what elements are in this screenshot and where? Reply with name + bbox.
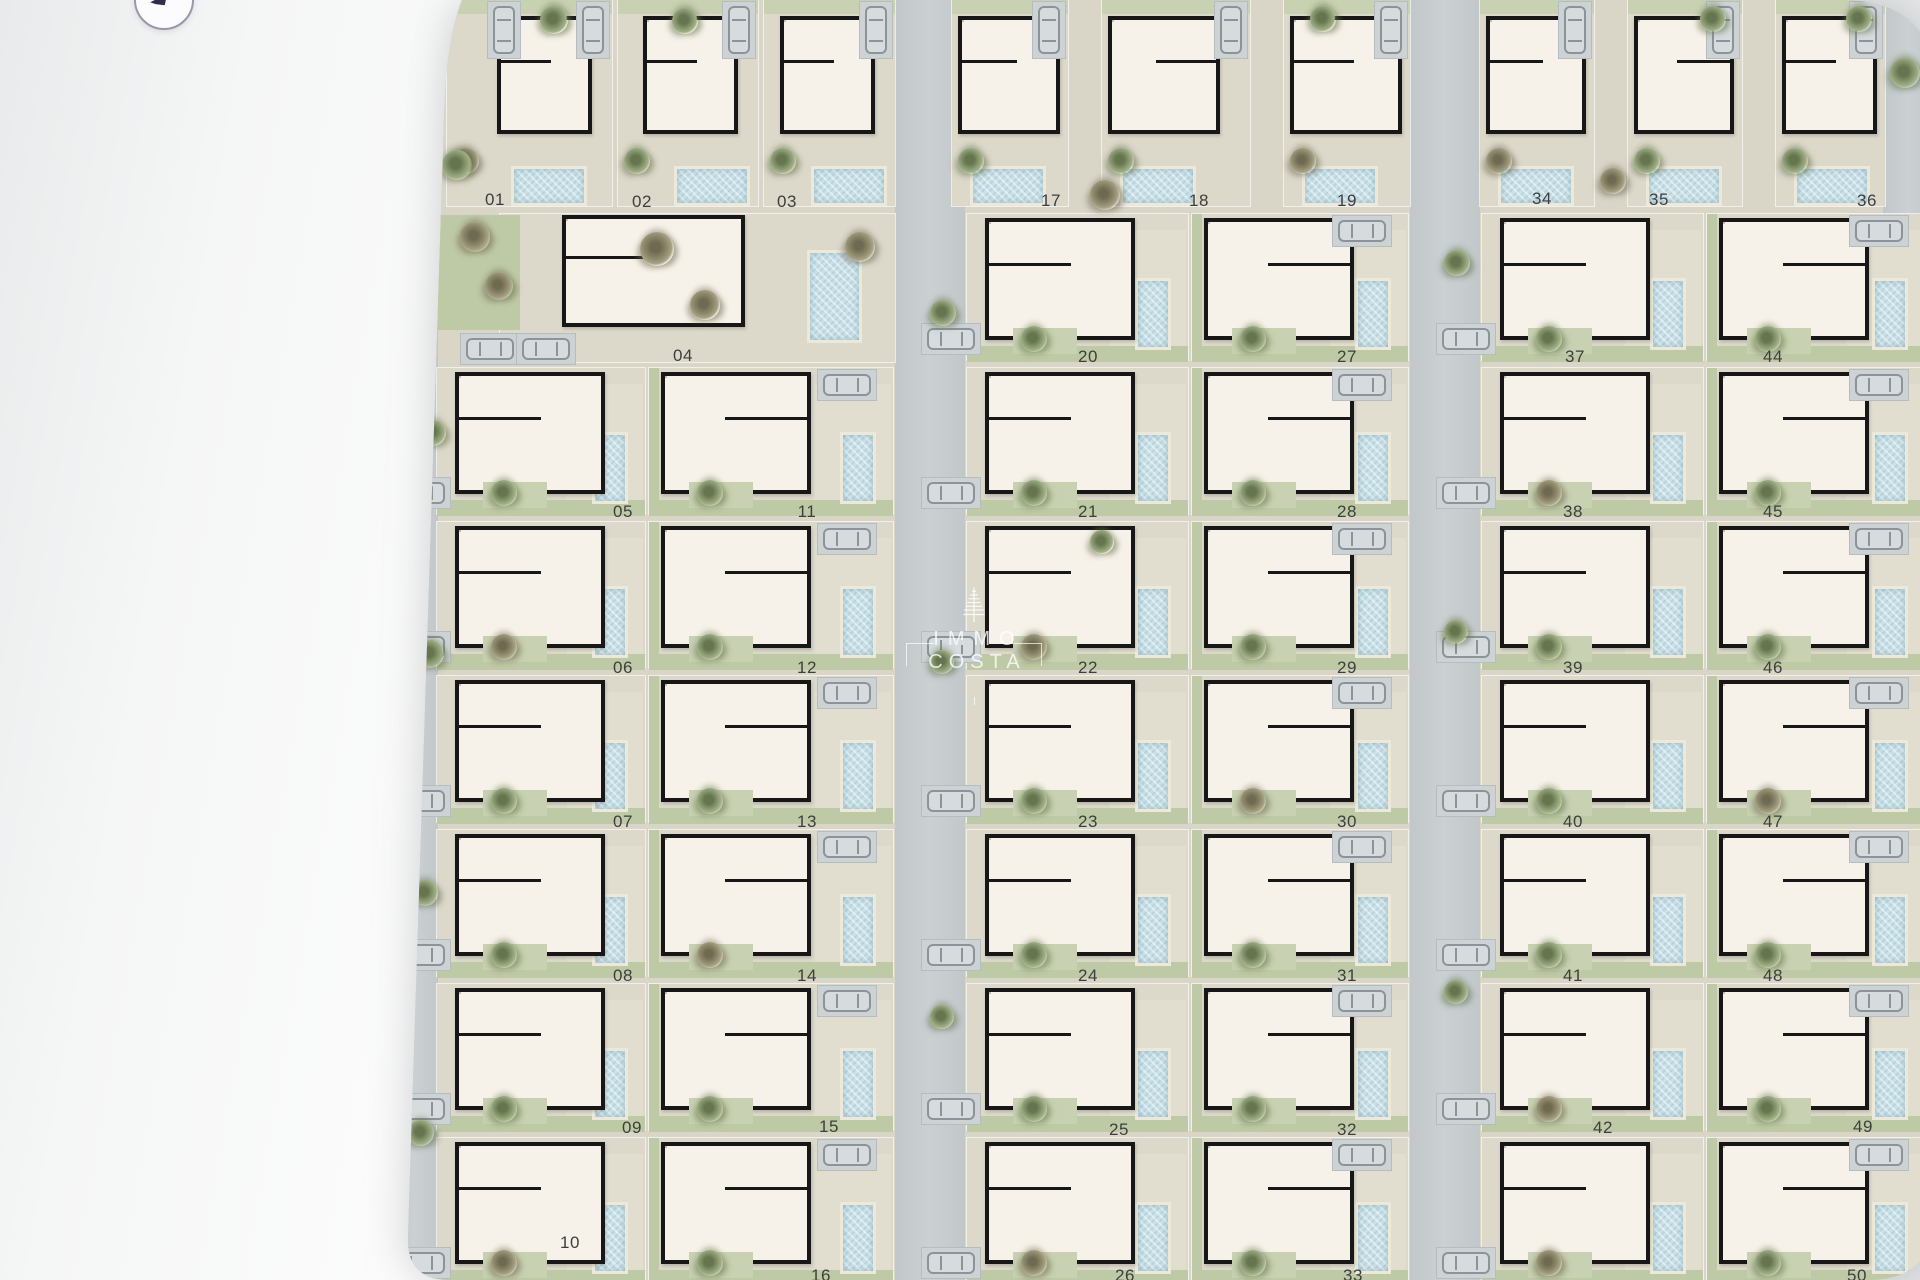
garden-patch — [1013, 1252, 1077, 1278]
furniture-icon — [1504, 838, 1506, 840]
tree-icon — [491, 1096, 517, 1122]
villa-lot — [437, 522, 645, 668]
garden-patch — [1232, 1098, 1296, 1124]
furniture-icon — [1504, 376, 1506, 378]
tree-icon — [1240, 942, 1266, 968]
plot-number-label: 31 — [1337, 966, 1357, 986]
car-icon — [927, 328, 975, 350]
terrace — [1330, 538, 1406, 654]
villa-floorplan — [1719, 526, 1869, 648]
driveway — [1436, 631, 1496, 663]
garden-patch — [1747, 1252, 1811, 1278]
furniture-icon — [1208, 992, 1210, 994]
garden-patch — [483, 790, 547, 816]
garden-strip — [649, 654, 893, 670]
plot-number-label: 27 — [1337, 347, 1357, 367]
villa-floorplan — [780, 16, 875, 134]
car-icon — [823, 1144, 871, 1166]
interior-wall — [989, 571, 1071, 574]
villa-floorplan — [985, 526, 1135, 648]
tree-icon — [491, 634, 517, 660]
garden-patch — [483, 636, 547, 662]
tree-icon — [1021, 634, 1047, 660]
terrace — [1110, 1000, 1186, 1116]
tree-icon — [453, 148, 479, 174]
driveway — [1436, 939, 1496, 971]
car-icon — [1338, 374, 1386, 396]
car-icon — [1564, 6, 1586, 54]
furniture-icon — [665, 992, 667, 994]
furniture-icon — [459, 838, 461, 840]
table-icon — [1504, 684, 1506, 686]
driveway — [1849, 831, 1909, 863]
terrace — [815, 692, 891, 808]
garden-patch — [689, 790, 753, 816]
car-icon — [823, 374, 871, 396]
furniture-icon — [459, 1146, 461, 1148]
table-icon — [962, 20, 964, 22]
garden-patch — [1528, 482, 1592, 508]
villa-lot — [437, 368, 645, 514]
furniture-icon — [665, 838, 667, 840]
terrace — [1330, 230, 1406, 346]
tree-icon — [1755, 788, 1781, 814]
villa-lot — [1707, 214, 1920, 360]
driveway — [516, 333, 576, 365]
table-icon — [989, 838, 991, 840]
car-icon — [1338, 1144, 1386, 1166]
garden-strip — [1707, 984, 1717, 1116]
block-right — [1480, 210, 1920, 1280]
terrace — [1625, 538, 1701, 654]
villa-floorplan — [661, 834, 811, 956]
immocosta-watermark: IMMO COSTA — [906, 584, 1042, 696]
villa-lot — [1707, 830, 1920, 976]
villa-floorplan — [1500, 218, 1650, 340]
interior-wall — [1504, 725, 1586, 728]
driveway — [1332, 369, 1392, 401]
back-arrow-icon — [149, 0, 168, 7]
furniture-icon — [1112, 20, 1114, 22]
plot-number-label: 07 — [613, 812, 633, 832]
villa-lot — [649, 368, 893, 514]
driveway — [722, 1, 756, 59]
plot-number-label: 12 — [797, 658, 817, 678]
garden-strip — [1707, 808, 1920, 824]
furniture-icon — [665, 530, 667, 532]
table-icon — [989, 530, 991, 532]
terrace — [1625, 692, 1701, 808]
garden-patch — [1528, 1098, 1592, 1124]
car-icon — [823, 836, 871, 858]
tree-icon — [442, 150, 472, 180]
furniture-icon — [1504, 992, 1506, 994]
plot-number-label: 39 — [1563, 658, 1583, 678]
furniture-icon — [1504, 530, 1506, 532]
swimming-pool — [1355, 740, 1391, 812]
table-icon — [1112, 20, 1114, 22]
villa-lot — [1482, 984, 1703, 1130]
car-icon — [927, 482, 975, 504]
car-icon — [1855, 6, 1877, 54]
swimming-pool — [840, 432, 876, 504]
swimming-pool — [1872, 432, 1908, 504]
driveway — [1849, 215, 1909, 247]
villa-lot — [1102, 0, 1250, 206]
swimming-pool — [840, 1048, 876, 1120]
garden-strip — [1707, 1270, 1920, 1280]
driveway — [1436, 1093, 1496, 1125]
villa-lot — [437, 984, 645, 1130]
villa-floorplan — [1500, 526, 1650, 648]
driveway — [1332, 677, 1392, 709]
furniture-icon — [1504, 838, 1506, 840]
villa-lot — [967, 830, 1188, 976]
terrace — [1847, 692, 1920, 808]
block-right-top — [1480, 0, 1885, 210]
driveway — [1849, 1139, 1909, 1171]
swimming-pool — [592, 1202, 628, 1274]
plot-number-label: 10 — [560, 1233, 580, 1253]
furniture-icon — [1208, 376, 1210, 378]
garden-patch — [1747, 482, 1811, 508]
site-plan-screenshot: 0102030405060708091011121314151617181920… — [0, 0, 1920, 1280]
garden-patch — [1528, 636, 1592, 662]
driveway — [921, 785, 981, 817]
villa-lot — [1192, 676, 1408, 822]
plot-number-label: 30 — [1337, 812, 1357, 832]
villa-floorplan — [1108, 16, 1220, 134]
swimming-pool — [592, 1048, 628, 1120]
table-icon — [1504, 222, 1506, 224]
plot-number-label: 15 — [819, 1117, 839, 1137]
site-plan: 0102030405060708091011121314151617181920… — [390, 0, 1920, 1280]
tree-icon — [460, 222, 490, 252]
plot-number-label: 40 — [1563, 812, 1583, 832]
villa-lot — [1707, 1138, 1920, 1280]
villa-floorplan — [985, 372, 1135, 494]
interior-wall — [1268, 725, 1350, 728]
garden-strip — [1192, 522, 1202, 654]
villa-lot — [1776, 0, 1885, 206]
interior-wall — [1677, 60, 1730, 63]
furniture-icon — [1504, 684, 1506, 686]
road-vertical-2 — [1410, 0, 1480, 1280]
villa-floorplan — [661, 1142, 811, 1264]
interior-wall — [989, 263, 1071, 266]
terrace — [567, 1154, 643, 1270]
garden-strip — [1628, 0, 1742, 14]
interior-wall — [1783, 1033, 1865, 1036]
swimming-pool — [1650, 432, 1686, 504]
table-icon — [1208, 530, 1210, 532]
tree-icon — [697, 942, 723, 968]
interior-wall — [784, 60, 834, 63]
car-icon — [397, 790, 445, 812]
swimming-pool — [1135, 432, 1171, 504]
furniture-icon — [1723, 530, 1725, 532]
villa-lot — [1192, 214, 1408, 360]
furniture-icon — [989, 530, 991, 532]
car-icon — [1855, 374, 1903, 396]
interior-wall — [725, 417, 807, 420]
driveway — [1849, 1, 1883, 59]
plot-number-label: 38 — [1563, 502, 1583, 522]
furniture-icon — [665, 1146, 667, 1148]
interior-wall — [1786, 60, 1836, 63]
car-icon — [1338, 528, 1386, 550]
villa-floorplan — [562, 215, 745, 327]
furniture-icon — [989, 530, 991, 532]
villa-floorplan — [497, 16, 592, 134]
furniture-icon — [784, 20, 786, 22]
driveway — [1849, 677, 1909, 709]
table-icon — [1208, 222, 1210, 224]
villa-lot — [649, 676, 893, 822]
tree-icon — [1240, 480, 1266, 506]
furniture-icon — [962, 20, 964, 22]
villa-floorplan — [1719, 372, 1869, 494]
interior-wall — [1783, 263, 1865, 266]
furniture-icon — [501, 20, 503, 22]
villa-floorplan — [455, 680, 605, 802]
plot-number-label: 13 — [797, 812, 817, 832]
table-icon — [1504, 992, 1506, 994]
furniture-icon — [784, 20, 786, 22]
garden-strip — [1707, 500, 1920, 516]
villa-lot — [967, 368, 1188, 514]
terrace — [1847, 1000, 1920, 1116]
garden-strip — [437, 500, 645, 516]
tree-icon — [1600, 168, 1626, 194]
garden-strip — [1482, 1116, 1703, 1132]
garden-strip — [1482, 654, 1703, 670]
tree-icon — [697, 788, 723, 814]
tree-icon — [1240, 1250, 1266, 1276]
driveway — [921, 477, 981, 509]
tree-icon — [1782, 148, 1808, 174]
furniture-icon — [1208, 1146, 1210, 1148]
interior-wall — [1783, 1187, 1865, 1190]
garden-strip — [967, 808, 1188, 824]
swimming-pool — [1135, 1202, 1171, 1274]
interior-wall — [989, 879, 1071, 882]
interior-wall — [459, 571, 541, 574]
villa-floorplan — [1500, 834, 1650, 956]
table-icon — [459, 838, 461, 840]
tree-icon — [1536, 326, 1562, 352]
furniture-icon — [989, 1146, 991, 1148]
road-left-edge — [390, 0, 438, 1280]
furniture-icon — [989, 838, 991, 840]
furniture-icon — [665, 992, 667, 994]
garden-patch — [1528, 944, 1592, 970]
furniture-icon — [665, 376, 667, 378]
furniture-icon — [665, 1146, 667, 1148]
garden-patch — [1232, 482, 1296, 508]
tree-icon — [697, 634, 723, 660]
villa-lot — [1482, 1138, 1703, 1280]
furniture-icon — [1208, 1146, 1210, 1148]
furniture-icon — [1504, 222, 1506, 224]
tree-icon — [1890, 58, 1920, 88]
table-icon — [1504, 838, 1506, 840]
interior-wall — [1504, 263, 1586, 266]
plot-number-label: 02 — [632, 192, 652, 212]
swimming-pool — [592, 432, 628, 504]
furniture-icon — [989, 376, 991, 378]
villa-floorplan — [455, 1142, 605, 1264]
furniture-icon — [1208, 222, 1210, 224]
swimming-pool — [1355, 586, 1391, 658]
furniture-icon — [1786, 20, 1788, 22]
car-icon — [493, 6, 515, 54]
swimming-pool — [1302, 166, 1378, 206]
garden-patch — [1747, 328, 1811, 354]
furniture-icon — [962, 20, 964, 22]
tree-icon — [1846, 6, 1872, 32]
garden-strip — [1707, 676, 1717, 808]
furniture-icon — [1504, 222, 1506, 224]
villa-floorplan — [1719, 988, 1869, 1110]
table-icon — [1208, 992, 1210, 994]
car-icon — [927, 636, 975, 658]
driveway — [817, 985, 877, 1017]
furniture-icon — [1723, 838, 1725, 840]
furniture-icon — [989, 684, 991, 686]
car-icon — [728, 6, 750, 54]
car-icon — [1338, 682, 1386, 704]
villa-lot — [967, 214, 1188, 360]
car-icon — [1855, 220, 1903, 242]
swimming-pool — [970, 166, 1046, 206]
interior-wall — [725, 725, 807, 728]
interior-wall — [1504, 571, 1586, 574]
villa-floorplan — [1290, 16, 1402, 134]
watermark-tick — [974, 697, 975, 705]
table-icon — [501, 20, 503, 22]
tree-icon — [697, 1096, 723, 1122]
garden-strip — [1707, 830, 1717, 962]
tree-icon — [1444, 620, 1468, 644]
utility-building — [395, 248, 437, 322]
plot-number-label: 08 — [613, 966, 633, 986]
plot-number-label: 33 — [1343, 1266, 1363, 1280]
terrace — [1330, 1000, 1406, 1116]
garden-strip — [618, 0, 758, 14]
furniture-icon — [566, 219, 568, 221]
interior-wall — [566, 256, 668, 259]
tree-icon — [1290, 148, 1316, 174]
furniture-icon — [1208, 684, 1210, 686]
driveway — [817, 677, 877, 709]
driveway — [859, 1, 893, 59]
furniture-icon — [647, 20, 649, 22]
furniture-icon — [459, 992, 461, 994]
tree-icon — [1444, 980, 1468, 1004]
garden-strip — [1192, 214, 1202, 346]
driveway — [391, 939, 451, 971]
car-icon — [927, 1098, 975, 1120]
plot-number-label: 23 — [1078, 812, 1098, 832]
furniture-icon — [1208, 838, 1210, 840]
terrace — [1330, 692, 1406, 808]
garden-strip — [1102, 0, 1250, 14]
tree-icon — [1536, 480, 1562, 506]
tree-icon — [1755, 326, 1781, 352]
table-icon — [1504, 376, 1506, 378]
garden-strip — [1192, 984, 1202, 1116]
garden-strip — [437, 808, 645, 824]
tree-icon — [1021, 480, 1047, 506]
tree-icon — [930, 1005, 954, 1029]
table-icon — [665, 684, 667, 686]
back-button[interactable] — [134, 0, 194, 30]
swimming-pool — [1872, 1202, 1908, 1274]
villa-lot — [649, 830, 893, 976]
tree-icon — [697, 480, 723, 506]
villa-floorplan — [1719, 218, 1869, 340]
interior-wall — [1490, 60, 1543, 63]
tree-icon — [672, 8, 698, 34]
furniture-icon — [459, 530, 461, 532]
garden-patch — [1528, 328, 1592, 354]
garden-strip — [649, 808, 893, 824]
villa-lot — [1482, 522, 1703, 668]
plot-number-label: 50 — [1847, 1266, 1867, 1280]
swimming-pool — [807, 250, 862, 343]
villa-floorplan — [455, 834, 605, 956]
garden-strip — [447, 0, 612, 14]
swimming-pool — [1650, 586, 1686, 658]
table-icon — [566, 219, 568, 221]
tree-icon — [1755, 1250, 1781, 1276]
villa-lot — [967, 522, 1188, 668]
table-icon — [1723, 992, 1725, 994]
villa-lot — [649, 984, 893, 1130]
tree-icon — [408, 1120, 434, 1146]
driveway — [1436, 1247, 1496, 1279]
garden-strip — [1707, 962, 1920, 978]
driveway — [1436, 323, 1496, 355]
tree-icon — [697, 1250, 723, 1276]
car-icon — [927, 790, 975, 812]
villa-lot — [967, 676, 1188, 822]
swimming-pool — [1135, 1048, 1171, 1120]
car-icon — [823, 682, 871, 704]
plot-number-label: 18 — [1189, 191, 1209, 211]
driveway — [391, 631, 451, 663]
car-icon — [927, 1252, 975, 1274]
interior-wall — [1783, 879, 1865, 882]
furniture-icon — [1504, 530, 1506, 532]
car-icon — [1338, 990, 1386, 1012]
driveway — [1436, 477, 1496, 509]
terrace — [1847, 846, 1920, 962]
tree-icon — [930, 300, 956, 326]
villa-floorplan — [1719, 1142, 1869, 1264]
plot-number-label: 45 — [1763, 502, 1783, 522]
plot-number-label: 46 — [1763, 658, 1783, 678]
plot-number-label: 17 — [1041, 191, 1061, 211]
interior-wall — [1783, 725, 1865, 728]
garden-strip — [649, 368, 659, 500]
swimming-pool — [840, 894, 876, 966]
interior-wall — [1504, 1033, 1586, 1036]
driveway — [460, 333, 520, 365]
furniture-icon — [459, 684, 461, 686]
swimming-pool — [840, 740, 876, 812]
